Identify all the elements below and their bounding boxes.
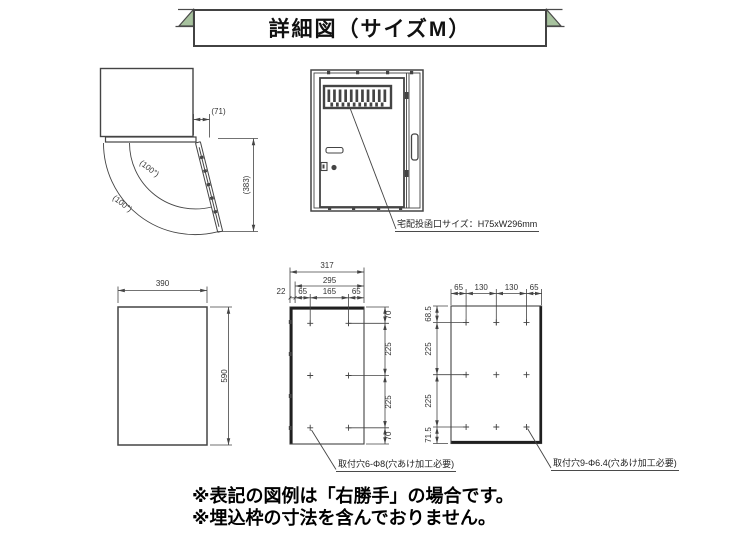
base-v4-label: 71.5 — [425, 427, 433, 443]
dim-door-offset-label: (71) — [211, 108, 225, 116]
front-face-bar — [106, 137, 197, 142]
dim-open-depth-label: (383) — [243, 176, 251, 195]
front-view-linework — [311, 70, 423, 229]
back-width-label: 390 — [156, 280, 169, 288]
base-v1-label: 68.5 — [425, 306, 433, 322]
ribbon-left-triangle — [179, 10, 194, 27]
base-seg4-label: 65 — [530, 284, 539, 292]
side-seg-offset-label: 22 — [277, 288, 286, 296]
side-v-bottom-label: 70 — [385, 432, 393, 441]
side-pitch-width-label: 295 — [323, 277, 336, 285]
base-seg3-label: 130 — [505, 284, 518, 292]
parcel-slot — [324, 86, 391, 108]
base-seg2-label: 130 — [475, 284, 488, 292]
ribbon-right-triangle — [547, 10, 562, 27]
base-v3-label: 225 — [425, 394, 433, 407]
detail-drawing-page: 詳細図（サイズM） (71) (383) (100°) (100°) 宅配投函口… — [0, 0, 740, 540]
back-panel-linework — [118, 287, 232, 446]
side-mounting-holes — [307, 320, 351, 431]
base-mounting-note: 取付穴9-Φ6.4(穴あけ加工必要) — [551, 458, 679, 471]
side-v-top-label: 70 — [385, 311, 393, 320]
parcel-slot-size-label: 宅配投函口サイズ：H75xW296mm — [395, 219, 539, 232]
side-v-upper-label: 225 — [385, 343, 393, 356]
title-banner: 詳細図（サイズM） — [193, 9, 547, 47]
base-mounting-holes — [463, 319, 529, 430]
footnotes: ※表記の図例は「右勝手」の場合です。 ※埋込枠の寸法を含んでおりません。 — [192, 485, 514, 529]
side-mounting-note: 取付穴6-Φ8(穴あけ加工必要) — [336, 459, 456, 472]
side-panel-linework — [289, 268, 389, 470]
base-v2-label: 225 — [425, 342, 433, 355]
footnote-line2: ※埋込枠の寸法を含んでおりません。 — [192, 507, 514, 529]
side-seg-left-label: 65 — [298, 288, 307, 296]
back-height-label: 590 — [221, 369, 229, 382]
side-dims-right — [349, 307, 390, 444]
door-handle — [412, 134, 419, 160]
base-note-leader — [528, 429, 552, 469]
nameplate-slot — [326, 148, 343, 154]
side-overall-width-label: 317 — [320, 262, 333, 270]
side-seg-right-label: 65 — [352, 288, 361, 296]
side-v-lower-label: 225 — [385, 395, 393, 408]
side-seg-center-label: 165 — [323, 288, 336, 296]
open-door — [196, 142, 223, 232]
base-panel-linework — [433, 289, 551, 468]
page-title: 詳細図（サイズM） — [269, 13, 472, 43]
box-body-topview — [101, 69, 194, 137]
footnote-line1: ※表記の図例は「右勝手」の場合です。 — [192, 485, 514, 507]
base-dims-left — [433, 306, 468, 444]
side-note-leader — [312, 430, 337, 470]
keyhole — [331, 165, 336, 170]
base-seg1-label: 65 — [454, 284, 463, 292]
